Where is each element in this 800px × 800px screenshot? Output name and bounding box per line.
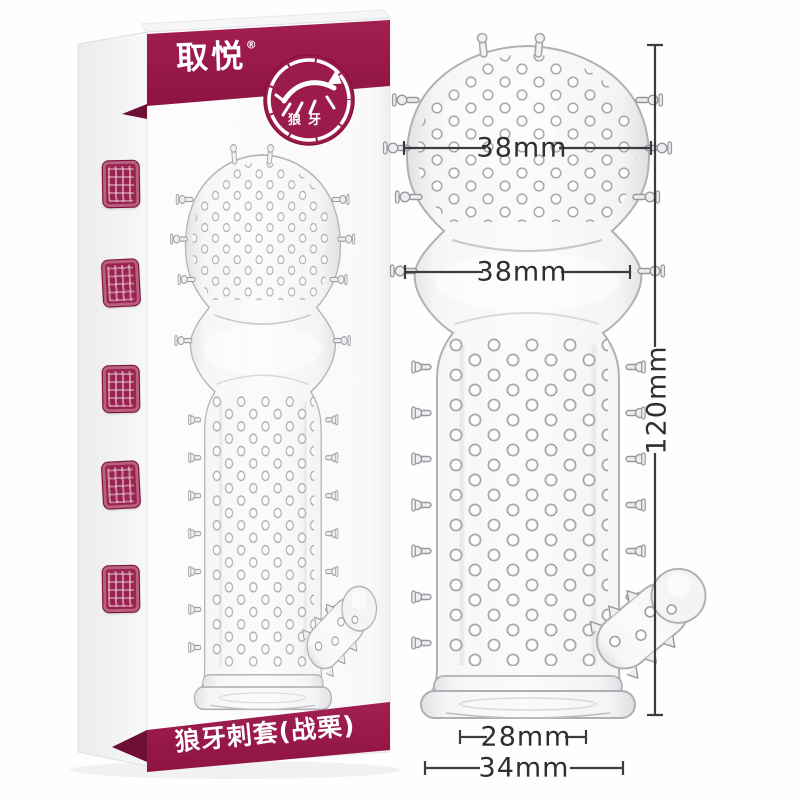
scene-graphics bbox=[0, 0, 800, 800]
product-photo-sleeve bbox=[384, 33, 723, 718]
product-dimension-image: 取悦® 狼牙 狼牙刺套(战栗) 38mm 38mm 120mm 28mm 34m… bbox=[0, 0, 800, 800]
wolf-badge bbox=[264, 55, 354, 145]
dimension-line-base-outer bbox=[425, 761, 623, 775]
box-side-face bbox=[78, 32, 147, 766]
product-box bbox=[70, 10, 400, 779]
dimension-line-opening-inner bbox=[460, 730, 586, 744]
